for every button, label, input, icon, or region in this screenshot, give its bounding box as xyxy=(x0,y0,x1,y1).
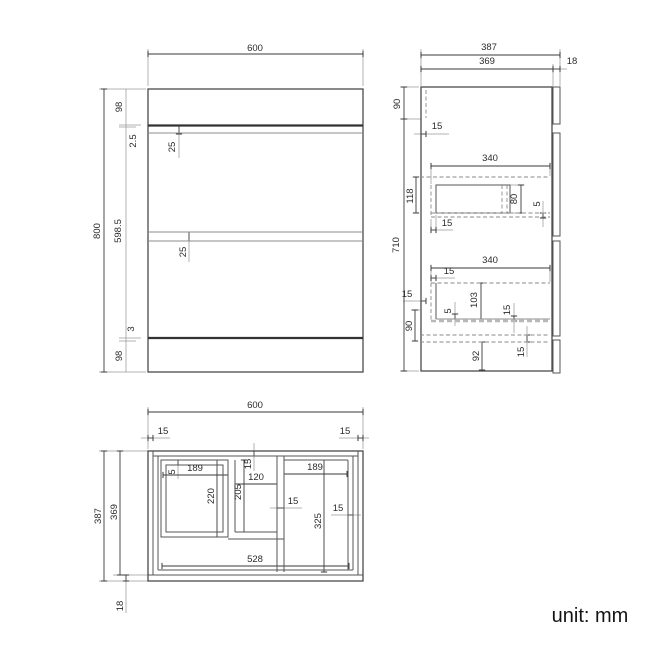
dim-side-body-height: 710 xyxy=(391,237,402,253)
dim-side-bottom-panel: 15 xyxy=(516,347,527,358)
dim-front-top-gap: 2.5 xyxy=(128,134,139,147)
dim-side-back-panel-top: 15 xyxy=(432,121,443,132)
side-view-extension-lines xyxy=(400,49,567,371)
dim-plan-back-panel: 15 xyxy=(243,459,254,470)
dim-plan-right-box-depth: 325 xyxy=(313,513,324,529)
dim-side-drawer2-side: 103 xyxy=(469,292,480,308)
dim-plan-right-wall: 15 xyxy=(333,503,344,514)
dim-plan-opening-wall: 15 xyxy=(288,496,299,507)
dim-plan-carcass-depth: 369 xyxy=(109,504,120,520)
dim-side-back-panel-low: 15 xyxy=(402,289,413,300)
dim-plan-opening-width: 120 xyxy=(248,472,264,483)
front-view-dimension-lines xyxy=(104,54,363,372)
dim-plan-total-depth: 387 xyxy=(93,508,104,524)
plan-view-extension-lines xyxy=(99,407,369,613)
dim-plan-left-gap: 5 xyxy=(167,469,178,474)
dim-plan-front-panel: 18 xyxy=(115,601,126,612)
front-view: 600 800 98 2.5 25 598.5 25 3 98 xyxy=(92,43,363,372)
dim-front-drawer-gap: 25 xyxy=(178,247,189,258)
dim-side-drawer2-width: 340 xyxy=(482,255,498,266)
side-view: 387 369 18 90 15 340 118 80 5 15 710 340… xyxy=(391,42,577,373)
dim-plan-side-panel-right: 15 xyxy=(340,426,351,437)
drawing-canvas: 600 800 98 2.5 25 598.5 25 3 98 xyxy=(0,0,650,650)
dim-side-bottom-zone: 90 xyxy=(404,321,415,332)
dim-side-drawer1-zone: 118 xyxy=(405,188,416,203)
dim-front-bottom-gap: 3 xyxy=(126,326,137,331)
dim-side-drawer1-back: 15 xyxy=(442,218,453,229)
dim-front-height: 800 xyxy=(92,223,103,239)
dim-side-drawer2-back: 15 xyxy=(444,266,455,277)
plan-view: 600 15 15 387 369 18 5 189 15 120 189 22… xyxy=(93,400,369,613)
dim-front-drawer-zone: 598.5 xyxy=(113,219,124,243)
dim-side-carcass-depth: 369 xyxy=(479,56,495,67)
dim-front-top-overlap: 25 xyxy=(167,142,178,153)
dim-side-front-panel: 18 xyxy=(567,56,578,67)
dim-side-drawer2-gap: 5 xyxy=(443,308,454,313)
dim-plan-width: 600 xyxy=(247,400,263,411)
dim-front-plinth: 98 xyxy=(114,351,125,362)
dim-side-drawer1-side: 80 xyxy=(509,194,520,205)
dim-plan-left-box-depth: 220 xyxy=(206,488,217,504)
dim-side-drawer2-inset: 15 xyxy=(502,305,513,316)
dim-side-top-zone: 90 xyxy=(392,99,403,110)
front-view-extension-lines xyxy=(99,49,363,372)
dim-front-width: 600 xyxy=(247,43,263,54)
technical-drawing-page: 600 800 98 2.5 25 598.5 25 3 98 xyxy=(0,0,650,650)
dim-side-plinth: 92 xyxy=(471,351,482,362)
dim-plan-side-panel-left: 15 xyxy=(158,426,169,437)
dim-plan-opening-depth: 205 xyxy=(233,484,244,500)
dim-side-drawer1-width: 340 xyxy=(482,153,498,164)
dim-side-drawer1-gap: 5 xyxy=(532,201,543,206)
front-view-geometry xyxy=(148,89,363,372)
dim-side-total-depth: 387 xyxy=(481,42,497,53)
dim-front-top-section: 98 xyxy=(114,102,125,113)
unit-label: unit: mm xyxy=(552,605,629,627)
dim-plan-right-box-width: 189 xyxy=(307,462,323,473)
dim-plan-left-box-width: 189 xyxy=(187,463,203,474)
dim-plan-inner-width: 528 xyxy=(247,554,263,565)
